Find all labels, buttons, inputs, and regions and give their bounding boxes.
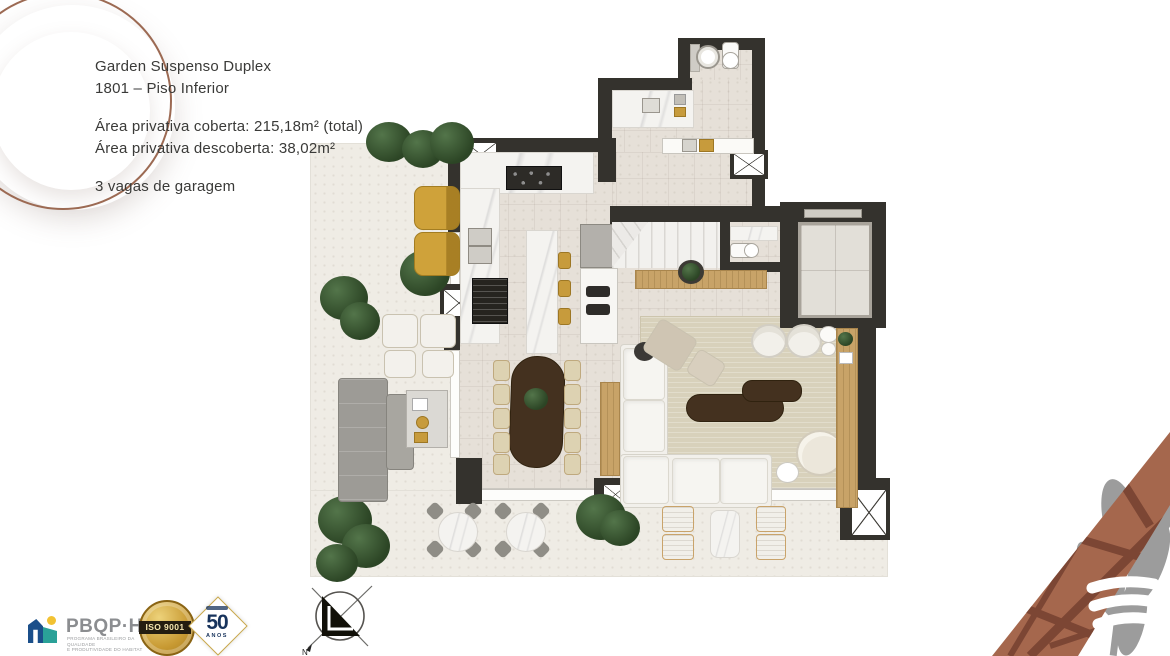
coffee-machine bbox=[586, 304, 610, 315]
presentation-slide: Garden Suspenso Duplex 1801 – Piso Infer… bbox=[0, 0, 1170, 656]
toilet-bowl bbox=[722, 52, 739, 69]
floor-plan bbox=[310, 38, 886, 575]
side-table bbox=[821, 342, 836, 356]
dining-chair bbox=[564, 432, 581, 453]
corridor-item bbox=[699, 139, 714, 152]
area-uncovered: Área privativa descoberta: 38,02m² bbox=[95, 138, 363, 160]
unit-subtitle: 1801 – Piso Inferior bbox=[95, 78, 363, 100]
bathroom-sink bbox=[696, 45, 720, 69]
sun-lounger bbox=[756, 506, 786, 532]
elevator-lintel bbox=[804, 209, 862, 218]
fifty-years-label: ANOS bbox=[194, 633, 240, 639]
outdoor-sofa bbox=[338, 378, 388, 502]
wall bbox=[752, 38, 765, 208]
yellow-lounge-chair bbox=[414, 186, 460, 230]
pbqph-subtitle-line1: PROGRAMA BRASILEIRO DA QUALIDADE bbox=[67, 636, 148, 647]
counter-sink bbox=[642, 98, 660, 113]
kitchen-island bbox=[526, 230, 558, 354]
small-appliance bbox=[674, 94, 686, 105]
exterior-gap bbox=[754, 124, 886, 206]
garage-info: 3 vagas de garagem bbox=[95, 176, 363, 198]
dining-chair bbox=[564, 454, 581, 475]
kitchen-sink bbox=[468, 228, 492, 246]
side-table bbox=[776, 462, 799, 483]
dining-table bbox=[508, 355, 566, 469]
wine-cooler bbox=[472, 278, 508, 324]
sun-lounger bbox=[756, 534, 786, 560]
sofa-cushion bbox=[623, 400, 665, 452]
island-stool bbox=[558, 252, 571, 269]
corner-art bbox=[870, 406, 1170, 656]
grill-item bbox=[412, 398, 428, 411]
plant bbox=[682, 263, 700, 281]
unit-info-block: Garden Suspenso Duplex 1801 – Piso Infer… bbox=[95, 56, 363, 198]
pbqph-title: PBQP·H bbox=[66, 616, 143, 638]
coffee-table bbox=[742, 380, 802, 402]
sofa-console bbox=[600, 382, 620, 476]
sideboard-item bbox=[839, 352, 853, 364]
grill-item bbox=[414, 432, 428, 443]
wall bbox=[598, 78, 612, 144]
north-compass: N bbox=[300, 584, 378, 656]
kitchen-sink bbox=[468, 246, 492, 264]
fifty-years-badge: 50 ANOS bbox=[194, 602, 240, 648]
pbqph-subtitle: PROGRAMA BRASILEIRO DA QUALIDADE E PRODU… bbox=[67, 636, 148, 653]
dining-chair bbox=[564, 384, 581, 405]
dining-chair bbox=[493, 360, 510, 381]
armchair-round bbox=[786, 324, 822, 358]
fifty-years-number: 50 bbox=[194, 611, 240, 635]
yellow-lounge-chair bbox=[414, 232, 460, 276]
terrace-ottoman bbox=[384, 350, 416, 378]
pbqph-icon-shape-blue bbox=[28, 619, 43, 643]
terrace-armchair bbox=[382, 314, 418, 348]
plant bbox=[430, 122, 474, 164]
bistro-table bbox=[438, 512, 478, 552]
grill-item bbox=[416, 416, 429, 429]
dining-chair bbox=[564, 360, 581, 381]
pbqph-icon-shape-teal bbox=[43, 627, 57, 643]
terrace-table bbox=[710, 510, 740, 558]
terrace-ottoman bbox=[422, 350, 454, 378]
lavabo-vanity bbox=[730, 226, 778, 241]
corridor-sink bbox=[682, 139, 697, 152]
pbqph-logo: PBQP·H PROGRAMA BRASILEIRO DA QUALIDADE … bbox=[28, 610, 148, 650]
dining-chair bbox=[493, 454, 510, 475]
plant bbox=[316, 544, 358, 582]
dining-chair bbox=[493, 432, 510, 453]
fifty-years-script-mark bbox=[206, 606, 228, 610]
pbqph-subtitle-line2: E PRODUTIVIDADE DO HABITAT bbox=[67, 647, 148, 653]
sun-lounger bbox=[662, 506, 694, 532]
pbqph-icon-dot bbox=[47, 616, 56, 625]
dining-chair bbox=[493, 408, 510, 429]
unit-title: Garden Suspenso Duplex bbox=[95, 56, 363, 78]
sofa-cushion bbox=[720, 458, 768, 504]
sofa-cushion bbox=[623, 456, 669, 504]
cooktop bbox=[506, 166, 562, 190]
iso9001-badge: ISO 9001 bbox=[139, 600, 195, 656]
small-appliance bbox=[674, 107, 686, 117]
compass-north-label: N bbox=[302, 648, 308, 656]
oven bbox=[586, 286, 610, 297]
sliding-door-glass bbox=[480, 488, 596, 501]
sofa-cushion bbox=[672, 458, 720, 504]
table-plant bbox=[524, 388, 548, 410]
island-stool bbox=[558, 308, 571, 325]
pbqph-icon bbox=[28, 613, 60, 645]
bistro-table bbox=[506, 512, 546, 552]
dining-chair bbox=[493, 384, 510, 405]
plant bbox=[340, 302, 380, 340]
wall bbox=[610, 206, 780, 222]
wall bbox=[598, 138, 616, 182]
toilet-bowl bbox=[744, 243, 759, 258]
duct-shaft bbox=[730, 150, 768, 179]
armchair-round bbox=[751, 324, 787, 358]
terrace-armchair bbox=[420, 314, 456, 348]
island-stool bbox=[558, 280, 571, 297]
plant bbox=[600, 510, 640, 546]
sun-lounger bbox=[662, 534, 694, 560]
area-covered: Área privativa coberta: 215,18m² (total) bbox=[95, 116, 363, 138]
plant bbox=[838, 332, 853, 346]
wall bbox=[598, 78, 692, 90]
dining-chair bbox=[564, 408, 581, 429]
elevator-cab bbox=[798, 222, 872, 318]
iso9001-label: ISO 9001 bbox=[139, 621, 191, 634]
wall bbox=[456, 458, 482, 504]
